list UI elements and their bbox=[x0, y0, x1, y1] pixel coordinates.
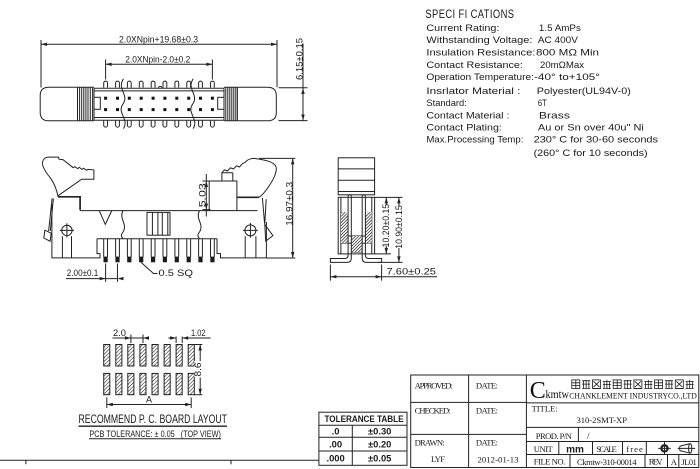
svg-text:DATE:: DATE: bbox=[476, 405, 498, 415]
svg-text:2.00±0.1: 2.00±0.1 bbox=[67, 268, 99, 278]
svg-text:DRAWN:: DRAWN: bbox=[415, 437, 445, 447]
svg-text:Polyester(UL94V-0): Polyester(UL94V-0) bbox=[537, 86, 631, 96]
svg-text:mm: mm bbox=[566, 444, 584, 455]
svg-text:Insulation Resistance:: Insulation Resistance: bbox=[426, 48, 535, 58]
svg-text:2.0: 2.0 bbox=[113, 328, 126, 338]
svg-text:Standard:: Standard: bbox=[426, 98, 466, 108]
svg-text:Au or Sn over 40u" Ni: Au or Sn over 40u" Ni bbox=[538, 123, 644, 133]
svg-text:free: free bbox=[626, 444, 643, 454]
svg-text:A: A bbox=[146, 395, 152, 405]
svg-text:PCB TOLERANCE: ± 0.05 (TOP V: PCB TOLERANCE: ± 0.05 (TOP VIEW) bbox=[89, 429, 221, 439]
svg-text:0.5 SQ: 0.5 SQ bbox=[159, 268, 194, 279]
svg-text:Brass: Brass bbox=[539, 110, 570, 120]
svg-text:Contact Resistance:: Contact Resistance: bbox=[426, 60, 523, 70]
svg-text:10.90±0.15: 10.90±0.15 bbox=[394, 205, 404, 249]
svg-text:APPROVED:: APPROVED: bbox=[415, 381, 453, 391]
svg-text:SCALE: SCALE bbox=[596, 444, 617, 454]
svg-text:TOLERANCE TABLE: TOLERANCE TABLE bbox=[325, 413, 404, 424]
svg-text:2.0XNpin-2.0±0.2: 2.0XNpin-2.0±0.2 bbox=[125, 54, 190, 64]
svg-text:TITLE:: TITLE: bbox=[532, 403, 558, 413]
svg-text:PROD. P/N: PROD. P/N bbox=[536, 431, 573, 441]
svg-text:Max.Processing Temp:: Max.Processing Temp: bbox=[426, 135, 523, 145]
svg-text:Withstanding Voltage:: Withstanding Voltage: bbox=[426, 35, 532, 45]
svg-text:CHANKLEMENT INDUSTRYCO.,LTD: CHANKLEMENT INDUSTRYCO.,LTD bbox=[569, 391, 697, 401]
svg-text:10.20±0.15: 10.20±0.15 bbox=[381, 204, 391, 248]
svg-text:.00: .00 bbox=[329, 438, 342, 449]
svg-text:DATE:: DATE: bbox=[476, 437, 498, 447]
svg-text:Current Rating:: Current Rating: bbox=[426, 23, 499, 33]
svg-text:230° C for 30-60 seconds: 230° C for 30-60 seconds bbox=[534, 135, 659, 145]
svg-text:REV.: REV. bbox=[649, 456, 663, 466]
svg-text:Ckmtw-310-00014: Ckmtw-310-00014 bbox=[577, 457, 637, 467]
svg-text:1.02: 1.02 bbox=[191, 328, 206, 338]
svg-text:C: C bbox=[530, 378, 546, 404]
svg-text:±0.05: ±0.05 bbox=[368, 453, 391, 464]
svg-text:6.15±0.15: 6.15±0.15 bbox=[295, 38, 305, 80]
svg-text:JL01: JL01 bbox=[681, 457, 697, 467]
svg-text:±0.20: ±0.20 bbox=[368, 438, 391, 449]
svg-text:310-2SMT-XP: 310-2SMT-XP bbox=[577, 415, 628, 425]
svg-text:AC 400V: AC 400V bbox=[538, 35, 579, 45]
svg-text:7.60±0.25: 7.60±0.25 bbox=[387, 266, 437, 277]
svg-text:16.97±0.3: 16.97±0.3 bbox=[284, 182, 294, 226]
svg-text:Insrlator Material :: Insrlator Material : bbox=[426, 86, 520, 96]
svg-text:800 MΩ Min: 800 MΩ Min bbox=[536, 48, 599, 58]
svg-text:(260° C for 10 seconds): (260° C for 10 seconds) bbox=[534, 148, 648, 158]
svg-text:DATE:: DATE: bbox=[476, 381, 498, 391]
svg-text:20mΩMax: 20mΩMax bbox=[540, 60, 584, 70]
svg-text:Contact Material :: Contact Material : bbox=[426, 110, 509, 120]
svg-text:Operation Temperature:: Operation Temperature: bbox=[426, 72, 534, 82]
svg-text:SPECI FI CATIONS: SPECI FI CATIONS bbox=[425, 8, 514, 21]
svg-text:8.6: 8.6 bbox=[193, 363, 203, 377]
svg-text:.000: .000 bbox=[326, 453, 344, 464]
svg-text:.0: .0 bbox=[332, 425, 340, 436]
svg-text:LYF: LYF bbox=[431, 454, 445, 464]
svg-text:-40° to+105°: -40° to+105° bbox=[534, 72, 600, 82]
svg-text:1.5 AmPs: 1.5 AmPs bbox=[539, 23, 581, 33]
svg-text:RECOMMEND P. C. BOARD LAYOUT: RECOMMEND P. C. BOARD LAYOUT bbox=[79, 413, 228, 426]
svg-text:UNIT: UNIT bbox=[534, 444, 554, 454]
svg-text:kmtw: kmtw bbox=[546, 387, 570, 401]
svg-text:FILE NO.: FILE NO. bbox=[534, 457, 566, 467]
svg-text:2.0XNpin+19.68±0.3: 2.0XNpin+19.68±0.3 bbox=[119, 35, 198, 45]
svg-text:2012-01-13: 2012-01-13 bbox=[478, 454, 519, 464]
svg-text:5.03: 5.03 bbox=[198, 183, 208, 207]
svg-text:A: A bbox=[671, 457, 678, 467]
svg-text:CHECKED:: CHECKED: bbox=[415, 405, 451, 415]
svg-text:±0.30: ±0.30 bbox=[368, 425, 391, 436]
svg-text:Contact Plating:: Contact Plating: bbox=[426, 123, 502, 133]
svg-text:6T: 6T bbox=[538, 98, 547, 108]
